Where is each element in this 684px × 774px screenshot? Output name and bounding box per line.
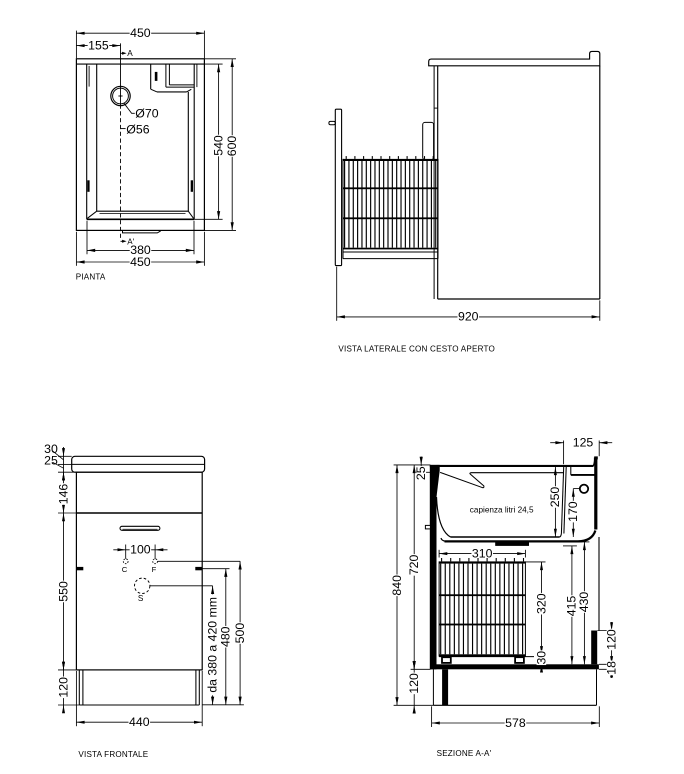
svg-text:S: S <box>138 594 144 603</box>
svg-text:170: 170 <box>566 501 580 522</box>
svg-text:Ø56: Ø56 <box>126 123 149 137</box>
svg-text:310: 310 <box>472 546 493 560</box>
svg-text:840: 840 <box>390 575 404 596</box>
svg-text:18: 18 <box>604 661 618 675</box>
svg-text:540: 540 <box>211 135 225 156</box>
svg-text:480: 480 <box>219 626 233 647</box>
svg-text:920: 920 <box>458 310 479 324</box>
svg-text:da 380 a 420 mm: da 380 a 420 mm <box>205 597 219 693</box>
svg-text:100: 100 <box>130 543 151 557</box>
svg-text:146: 146 <box>56 484 70 505</box>
svg-text:250: 250 <box>548 487 562 508</box>
svg-text:120: 120 <box>407 673 421 694</box>
svg-text:capienza litri 24,5: capienza litri 24,5 <box>470 506 534 515</box>
svg-text:450: 450 <box>130 26 151 40</box>
svg-text:430: 430 <box>577 592 591 613</box>
svg-text:550: 550 <box>56 581 70 602</box>
svg-text:320: 320 <box>534 593 548 614</box>
svg-text:578: 578 <box>505 716 526 730</box>
svg-text:440: 440 <box>129 715 150 729</box>
svg-text:Ø70: Ø70 <box>135 106 158 120</box>
svg-text:25: 25 <box>44 453 58 467</box>
svg-text:120: 120 <box>604 629 618 650</box>
svg-text:C: C <box>122 565 128 574</box>
svg-text:600: 600 <box>225 136 239 157</box>
svg-text:155: 155 <box>88 38 109 52</box>
svg-text:450: 450 <box>130 255 151 269</box>
svg-text:VISTA FRONTALE: VISTA FRONTALE <box>78 750 148 759</box>
svg-text:A: A <box>127 49 133 58</box>
svg-text:500: 500 <box>233 623 247 644</box>
svg-text:120: 120 <box>56 677 70 698</box>
svg-text:25: 25 <box>414 466 428 480</box>
svg-text:720: 720 <box>407 554 421 575</box>
svg-text:PIANTA: PIANTA <box>76 273 106 282</box>
svg-text:SEZIONE A-A': SEZIONE A-A' <box>437 749 492 758</box>
svg-text:30: 30 <box>534 651 548 665</box>
svg-text:125: 125 <box>573 436 594 450</box>
svg-text:F: F <box>152 565 157 574</box>
svg-text:VISTA LATERALE CON CESTO APERT: VISTA LATERALE CON CESTO APERTO <box>338 344 495 353</box>
